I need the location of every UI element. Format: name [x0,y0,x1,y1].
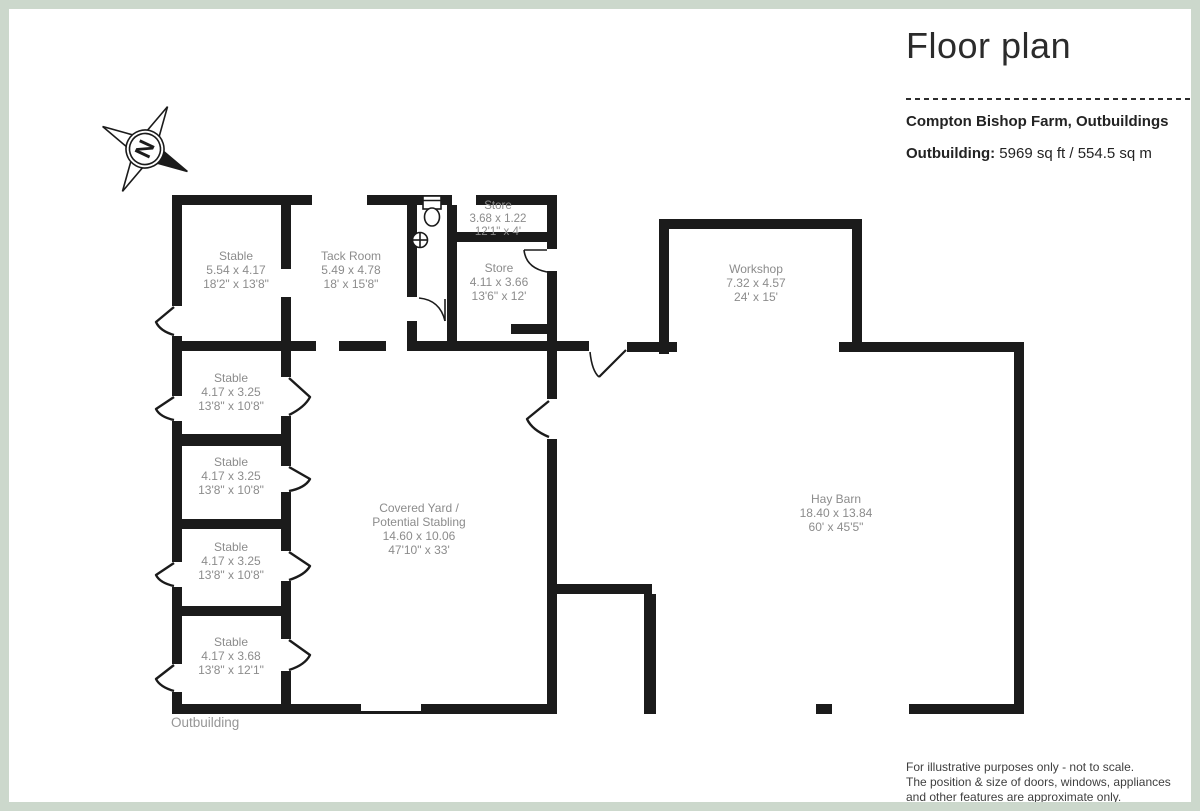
wall [172,704,361,714]
room-dim-metric: 5.49 x 4.78 [281,263,421,277]
property-name: Compton Bishop Farm, Outbuildings [906,113,1168,130]
room-label-workshop: Workshop 7.32 x 4.57 24' x 15' [686,262,826,304]
wall [627,342,677,352]
wall [816,704,832,714]
room-dim-imperial: 13'8" x 12'1" [161,663,301,677]
wall [281,581,291,639]
disclaimer-line: and other features are approximate only. [906,790,1171,805]
room-dim-imperial: 18' x 15'8" [281,277,421,291]
door-arc [590,352,599,377]
room-dim-metric: 18.40 x 13.84 [766,506,906,520]
room-name: Stable [161,371,301,385]
wall [839,342,1024,352]
wall [909,704,1024,714]
wall [172,606,291,616]
disclaimer-line: The position & size of doors, windows, a… [906,775,1171,790]
room-dim-metric: 3.68 x 1.22 [438,213,558,226]
area-value: 5969 sq ft / 554.5 sq m [995,145,1152,162]
area-label: Outbuilding: [906,145,995,162]
room-label-store-small: Store 3.68 x 1.22 12'1" x 4' [438,200,558,239]
disclaimer-line: For illustrative purposes only - not to … [906,760,1171,775]
wall [659,219,669,354]
threshold-line [361,711,421,714]
room-name: Covered Yard / [349,501,489,515]
room-dim-metric: 4.17 x 3.25 [161,385,301,399]
wall [339,341,386,351]
wall [172,519,291,529]
room-dim-metric: 4.17 x 3.25 [161,469,301,483]
room-label-stable-3: Stable 4.17 x 3.25 13'8" x 10'8" [161,455,301,497]
wall [407,341,589,351]
wall [172,195,312,205]
stable-door-symbol [156,307,174,335]
floorplan-page: Floor plan Compton Bishop Farm, Outbuild… [0,0,1200,811]
outbuilding-label: Outbuilding [171,715,239,730]
room-dim-imperial: 13'8" x 10'8" [161,483,301,497]
wall [1014,342,1024,714]
wall [281,297,291,341]
wall [172,434,291,446]
room-name: Stable [161,455,301,469]
room-name: Hay Barn [766,492,906,506]
wall [407,321,417,341]
room-dim-metric: 14.60 x 10.06 [349,529,489,543]
room-label-hay-barn: Hay Barn 18.40 x 13.84 60' x 45'5" [766,492,906,534]
room-label-stable-5: Stable 4.17 x 3.68 13'8" x 12'1" [161,635,301,677]
wall [547,439,557,704]
room-dim-imperial: 13'8" x 10'8" [161,399,301,413]
wall [172,341,316,351]
room-dim-imperial: 13'6" x 12' [439,289,559,303]
stable-door-symbol [527,401,549,437]
room-label-stable-2: Stable 4.17 x 3.25 13'8" x 10'8" [161,371,301,413]
room-label-tack-room: Tack Room 5.49 x 4.78 18' x 15'8" [281,249,421,291]
room-dim-imperial: 12'1" x 4' [438,226,558,239]
wall [852,219,862,352]
room-dim-imperial: 47'10" x 33' [349,543,489,557]
room-name: Stable [161,635,301,649]
room-name: Potential Stabling [349,515,489,529]
room-dim-imperial: 13'8" x 10'8" [161,568,301,582]
room-name: Tack Room [281,249,421,263]
room-label-covered-yard: Covered Yard / Potential Stabling 14.60 … [349,501,489,557]
dashed-divider [906,98,1197,100]
room-dim-metric: 7.32 x 4.57 [686,276,826,290]
room-dim-metric: 4.17 x 3.68 [161,649,301,663]
wall [659,219,862,229]
wall [557,584,652,594]
wall [421,704,557,714]
room-name: Store [439,261,559,275]
compass-rose: N [93,97,197,201]
page-title: Floor plan [906,25,1071,67]
room-label-stable-4: Stable 4.17 x 3.25 13'8" x 10'8" [161,540,301,582]
room-dim-imperial: 60' x 45'5" [766,520,906,534]
area-summary: Outbuilding: 5969 sq ft / 554.5 sq m [906,145,1152,162]
room-name: Stable [161,540,301,554]
wall [644,594,656,714]
room-name: Store [438,200,558,213]
disclaimer: For illustrative purposes only - not to … [906,760,1171,805]
room-label-store: Store 4.11 x 3.66 13'6" x 12' [439,261,559,303]
door-leaf [599,350,626,377]
room-dim-metric: 4.17 x 3.25 [161,554,301,568]
room-dim-metric: 4.11 x 3.66 [439,275,559,289]
room-name: Workshop [686,262,826,276]
room-dim-imperial: 24' x 15' [686,290,826,304]
